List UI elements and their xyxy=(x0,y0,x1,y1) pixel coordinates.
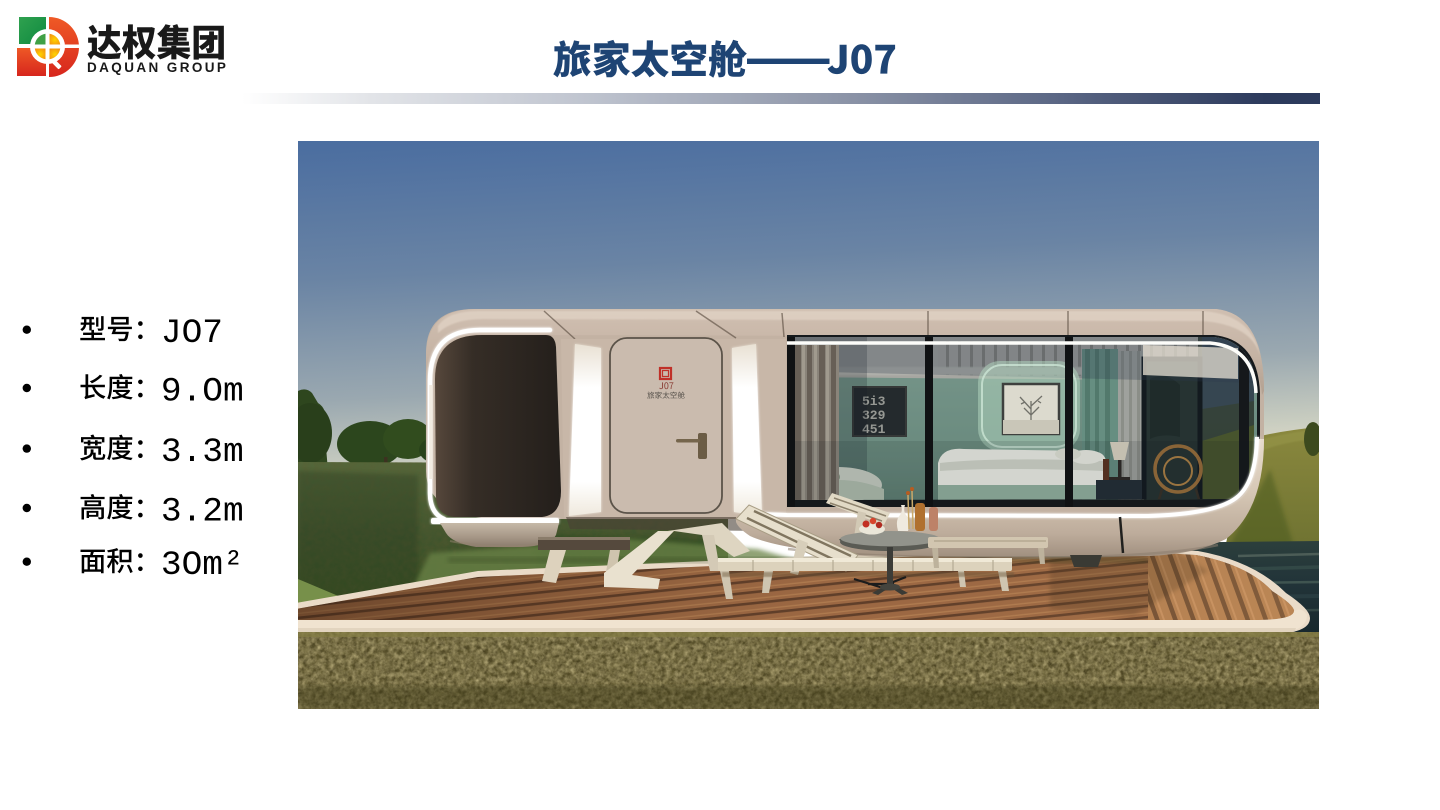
svg-text:3Om²: 3Om² xyxy=(161,546,244,585)
svg-text:JO7: JO7 xyxy=(161,314,223,353)
svg-text:3.3m: 3.3m xyxy=(161,433,244,472)
svg-text:3.2m: 3.2m xyxy=(161,492,244,531)
svg-text:9.Om: 9.Om xyxy=(161,372,244,411)
